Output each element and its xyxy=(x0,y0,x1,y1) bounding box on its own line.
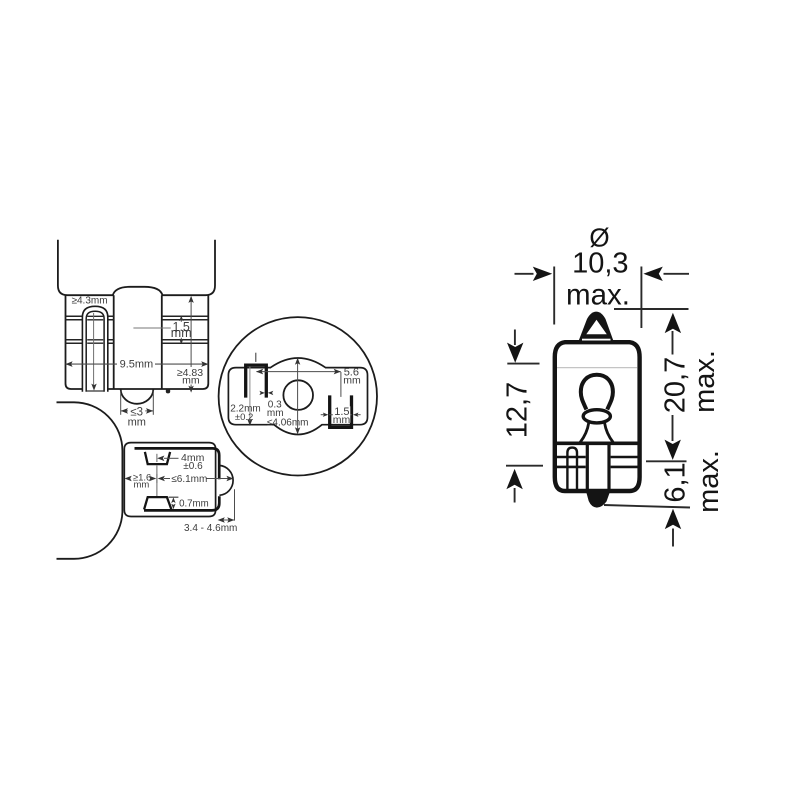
svg-text:≤4.06mm: ≤4.06mm xyxy=(267,417,309,428)
svg-text:≤6.1mm: ≤6.1mm xyxy=(171,474,207,485)
svg-text:max.: max. xyxy=(566,278,630,311)
svg-text:9.5mm: 9.5mm xyxy=(120,358,154,370)
svg-text:±0.6: ±0.6 xyxy=(183,461,203,472)
svg-text:mm: mm xyxy=(134,479,150,490)
svg-text:±0.2: ±0.2 xyxy=(235,412,253,423)
svg-text:max.: max. xyxy=(693,450,725,513)
svg-text:mm: mm xyxy=(182,375,200,387)
svg-text:≥4.3mm: ≥4.3mm xyxy=(72,295,108,306)
svg-text:3.4 - 4.6mm: 3.4 - 4.6mm xyxy=(184,523,237,534)
svg-text:0.7mm: 0.7mm xyxy=(179,499,209,510)
svg-text:mm: mm xyxy=(171,326,192,340)
svg-text:12,7: 12,7 xyxy=(502,382,534,438)
svg-text:mm: mm xyxy=(128,416,146,428)
svg-text:mm: mm xyxy=(333,414,351,426)
svg-text:10,3: 10,3 xyxy=(572,247,628,279)
svg-text:20,7: 20,7 xyxy=(660,357,692,413)
svg-text:mm: mm xyxy=(343,375,361,387)
svg-text:max.: max. xyxy=(689,350,721,413)
svg-text:6,1: 6,1 xyxy=(660,462,692,502)
